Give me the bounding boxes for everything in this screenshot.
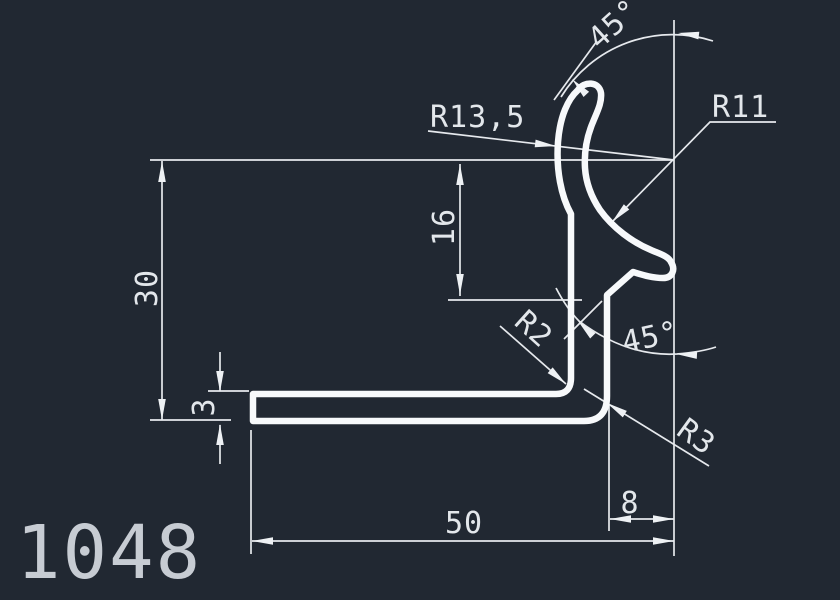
radius-text-r3: R3 <box>670 412 721 463</box>
dimension-text-3: 3 <box>187 397 222 416</box>
dimension-text-8: 8 <box>620 486 639 521</box>
dimension-text-50: 50 <box>445 506 483 541</box>
radius-text-r11: R11 <box>712 90 769 125</box>
arrow-up-icon <box>216 424 224 445</box>
arrow-left-icon <box>252 537 273 545</box>
leader-line <box>612 122 776 222</box>
arrow-up-icon <box>456 164 464 185</box>
arrow-icon <box>575 318 595 338</box>
dimension-text-30: 30 <box>130 269 165 307</box>
dimension-thickness-3[interactable]: 3 <box>187 352 224 464</box>
arrow-down-icon <box>158 399 166 420</box>
arrow-down-icon <box>456 274 464 295</box>
arrow-up-icon <box>158 161 166 182</box>
dimension-text-16: 16 <box>427 208 462 246</box>
drawing-svg: 30 16 3 50 8 R13,5 R11 <box>0 0 840 600</box>
dimension-angle-mid-45[interactable]: 45° <box>556 288 716 361</box>
dimension-width-8[interactable]: 8 <box>610 486 674 523</box>
cad-canvas[interactable]: 30 16 3 50 8 R13,5 R11 <box>0 0 840 600</box>
dimension-height-30[interactable]: 30 <box>130 161 166 420</box>
arrow-right-icon <box>653 537 674 545</box>
dimension-radius-r11[interactable]: R11 <box>609 90 776 225</box>
dimension-angle-top-45[interactable]: 45° <box>554 0 713 100</box>
dimension-radius-r13-5[interactable]: R13,5 <box>428 100 674 160</box>
part-number[interactable]: 1048 <box>16 510 202 596</box>
radius-text-r2: R2 <box>507 304 559 356</box>
dimension-height-16[interactable]: 16 <box>427 164 464 296</box>
arrow-right-icon <box>653 515 674 523</box>
arrow-icon <box>535 140 557 150</box>
extension-lines[interactable] <box>150 20 674 556</box>
dimension-radius-r2[interactable]: R2 <box>500 304 568 387</box>
dimension-width-50[interactable]: 50 <box>252 506 674 545</box>
radius-text-r13-5: R13,5 <box>430 100 525 135</box>
arrow-down-icon <box>216 371 224 392</box>
